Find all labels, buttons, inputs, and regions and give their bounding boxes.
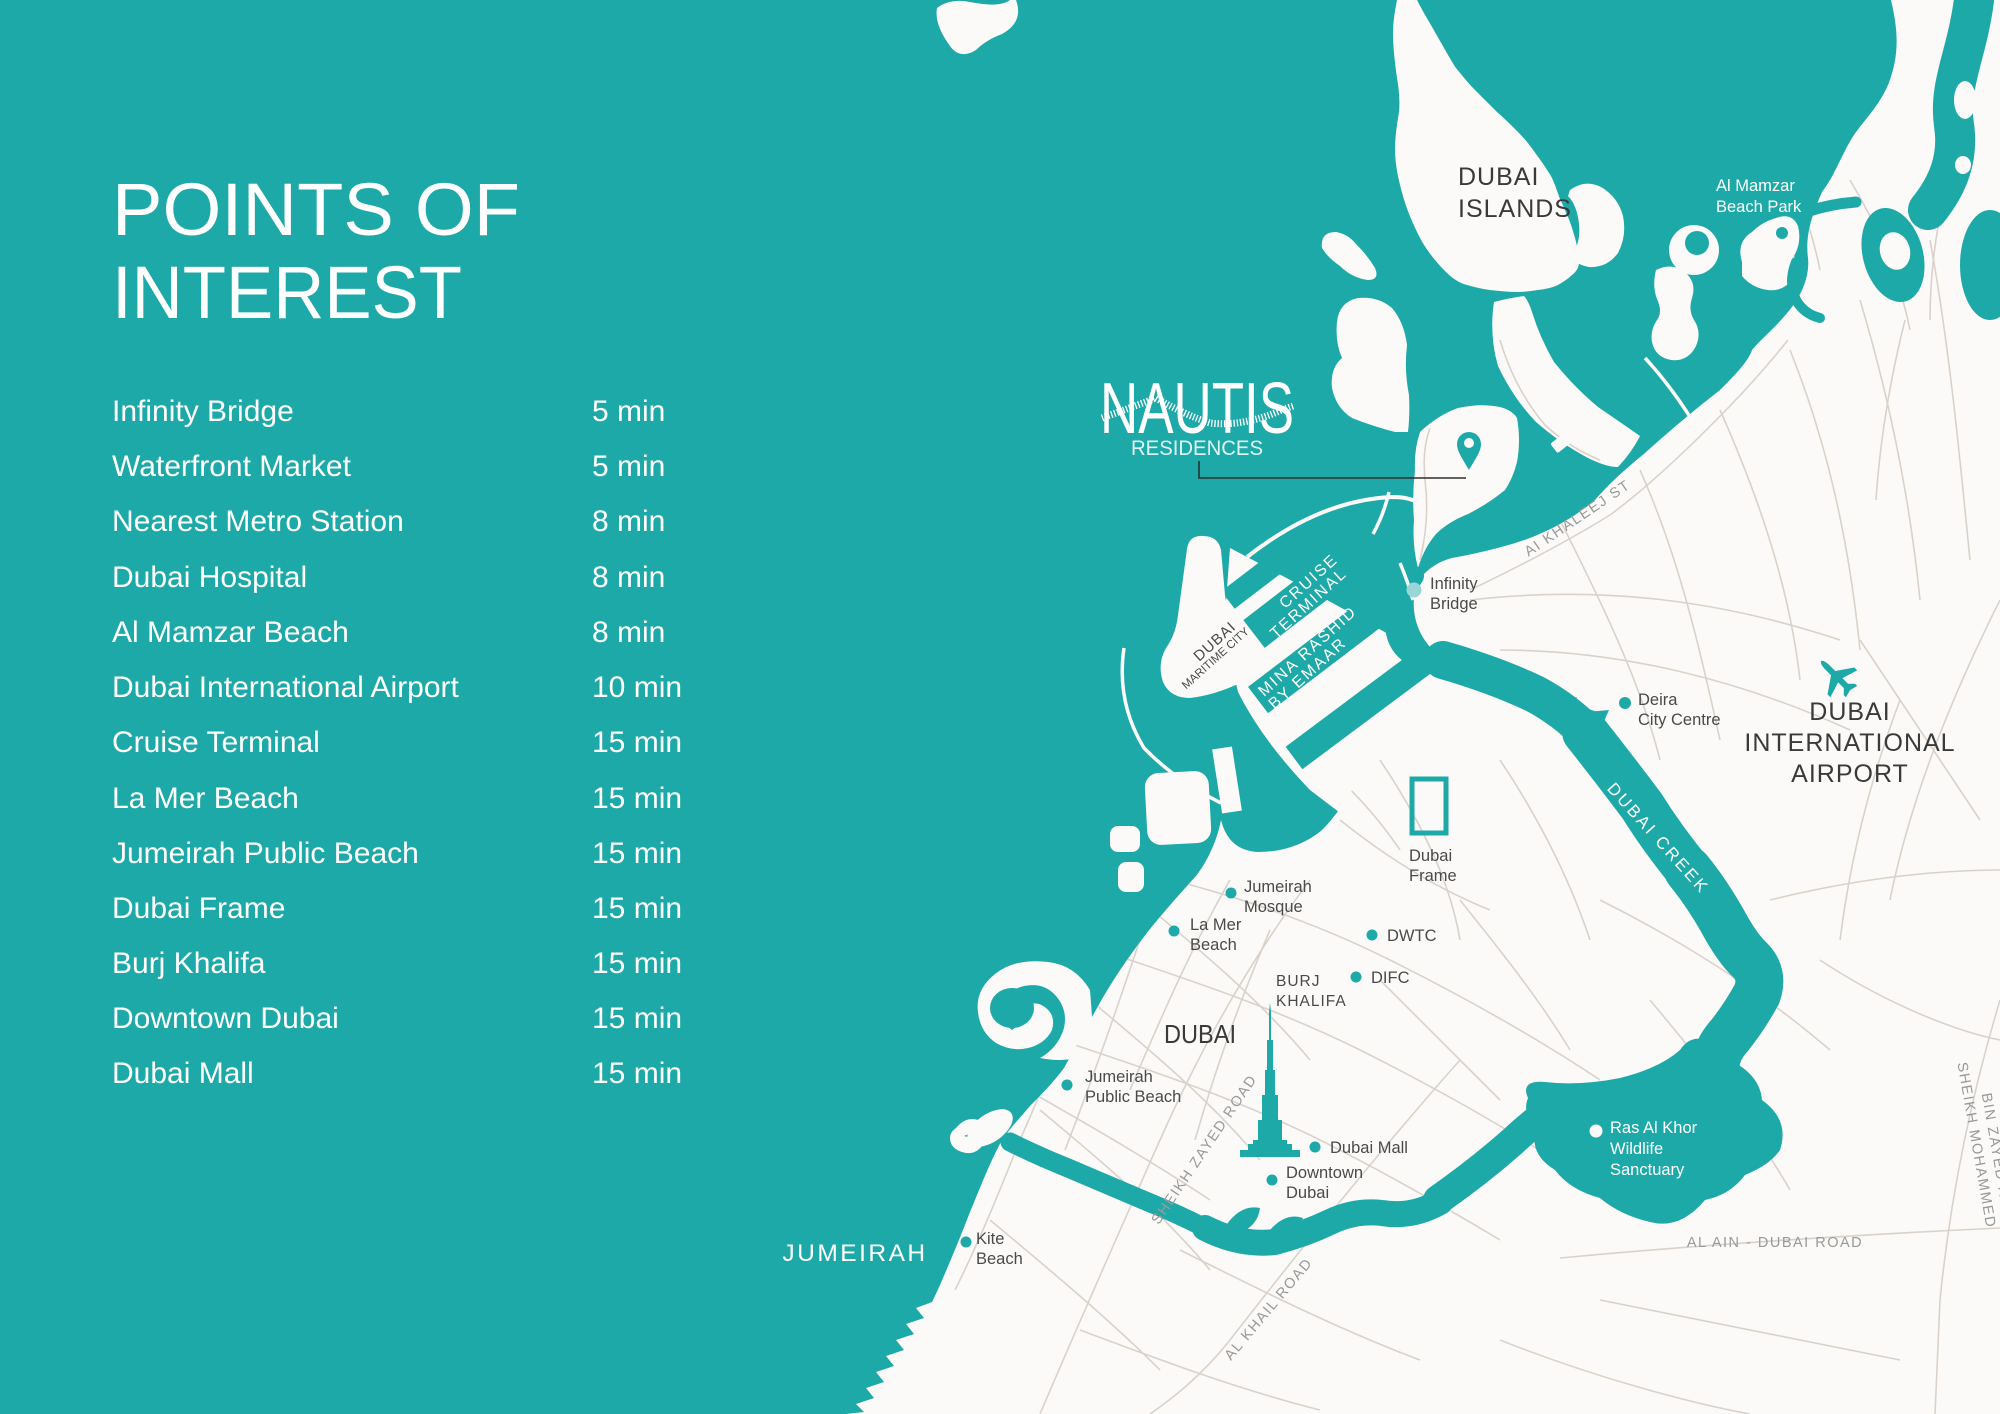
svg-text:Public Beach: Public Beach — [1085, 1088, 1181, 1106]
svg-text:Beach Park: Beach Park — [1716, 198, 1802, 216]
svg-text:DUBAI: DUBAI — [1164, 1019, 1236, 1049]
svg-text:Deira: Deira — [1638, 691, 1678, 709]
svg-text:Dubai Hospital: Dubai Hospital — [112, 561, 307, 594]
svg-text:Infinity Bridge: Infinity Bridge — [112, 395, 294, 428]
svg-text:Cruise Terminal: Cruise Terminal — [112, 726, 320, 759]
svg-text:Ras Al Khor: Ras Al Khor — [1610, 1119, 1698, 1137]
svg-text:DWTC: DWTC — [1387, 927, 1437, 945]
svg-text:15 min: 15 min — [592, 892, 682, 925]
svg-text:8 min: 8 min — [592, 505, 665, 538]
svg-text:INTEREST: INTEREST — [112, 251, 462, 334]
svg-text:Jumeirah: Jumeirah — [1244, 878, 1312, 896]
svg-text:City Centre: City Centre — [1638, 711, 1721, 729]
svg-text:10 min: 10 min — [592, 671, 682, 704]
svg-text:Burj Khalifa: Burj Khalifa — [112, 947, 266, 980]
svg-text:Dubai Frame: Dubai Frame — [112, 892, 285, 925]
svg-text:15 min: 15 min — [592, 1002, 682, 1035]
svg-text:Al Mamzar Beach: Al Mamzar Beach — [112, 616, 349, 649]
svg-text:Dubai Mall: Dubai Mall — [112, 1057, 254, 1090]
svg-text:Dubai: Dubai — [1409, 847, 1452, 865]
svg-text:15 min: 15 min — [592, 782, 682, 815]
svg-text:Downtown Dubai: Downtown Dubai — [112, 1002, 339, 1035]
svg-text:Bridge: Bridge — [1430, 595, 1478, 613]
svg-text:AL AIN - DUBAI ROAD: AL AIN - DUBAI ROAD — [1687, 1235, 1863, 1251]
svg-text:La Mer: La Mer — [1190, 916, 1242, 934]
svg-text:DIFC: DIFC — [1371, 969, 1410, 987]
svg-text:Wildlife: Wildlife — [1610, 1140, 1663, 1158]
svg-text:Kite: Kite — [976, 1230, 1004, 1248]
svg-text:Frame: Frame — [1409, 867, 1457, 885]
svg-text:Jumeirah Public Beach: Jumeirah Public Beach — [112, 837, 419, 870]
svg-text:Dubai: Dubai — [1286, 1184, 1329, 1202]
svg-text:15 min: 15 min — [592, 947, 682, 980]
svg-text:5 min: 5 min — [592, 450, 665, 483]
svg-text:La Mer Beach: La Mer Beach — [112, 782, 299, 815]
svg-text:Nearest Metro Station: Nearest Metro Station — [112, 505, 404, 538]
svg-text:POINTS OF: POINTS OF — [112, 168, 520, 251]
svg-text:15 min: 15 min — [592, 837, 682, 870]
svg-text:Infinity: Infinity — [1430, 575, 1478, 593]
svg-text:Mosque: Mosque — [1244, 898, 1303, 916]
svg-text:INTERNATIONAL: INTERNATIONAL — [1744, 729, 1955, 757]
svg-text:ISLANDS: ISLANDS — [1458, 195, 1572, 223]
svg-text:Dubai Mall: Dubai Mall — [1330, 1139, 1408, 1157]
svg-text:RESIDENCES: RESIDENCES — [1131, 437, 1263, 460]
svg-text:BURJ: BURJ — [1276, 973, 1320, 990]
svg-text:5 min: 5 min — [592, 395, 665, 428]
svg-text:15 min: 15 min — [592, 1057, 682, 1090]
svg-text:8 min: 8 min — [592, 616, 665, 649]
svg-text:Sanctuary: Sanctuary — [1610, 1161, 1685, 1179]
svg-text:Waterfront Market: Waterfront Market — [112, 450, 352, 483]
svg-text:Downtown: Downtown — [1286, 1164, 1363, 1182]
svg-text:KHALIFA: KHALIFA — [1276, 993, 1347, 1010]
svg-text:DUBAI: DUBAI — [1458, 163, 1539, 191]
svg-text:8 min: 8 min — [592, 561, 665, 594]
svg-text:15 min: 15 min — [592, 726, 682, 759]
svg-text:Jumeirah: Jumeirah — [1085, 1068, 1153, 1086]
svg-text:DUBAI: DUBAI — [1809, 698, 1890, 726]
svg-text:AIRPORT: AIRPORT — [1791, 760, 1909, 788]
svg-text:Al Mamzar: Al Mamzar — [1716, 177, 1795, 195]
svg-text:Dubai International Airport: Dubai International Airport — [112, 671, 460, 704]
svg-text:JUMEIRAH: JUMEIRAH — [782, 1240, 927, 1267]
svg-text:Beach: Beach — [976, 1250, 1023, 1268]
svg-text:Beach: Beach — [1190, 936, 1237, 954]
